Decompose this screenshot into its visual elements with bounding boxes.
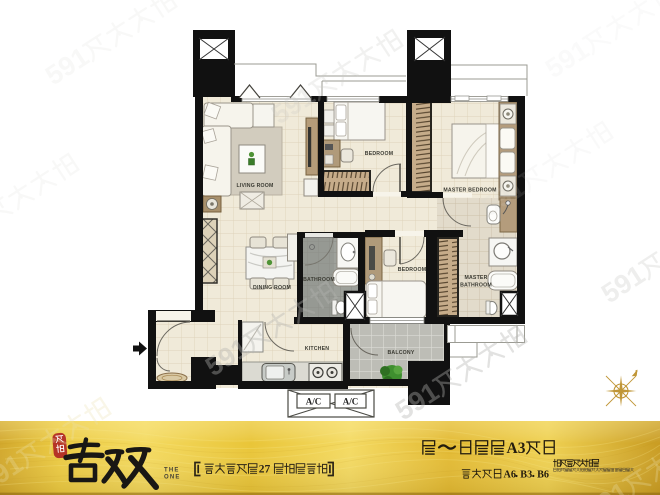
svg-text:MASTER: MASTER [464,275,487,281]
svg-text:LIVING ROOM: LIVING ROOM [236,183,273,189]
svg-text:ONE: ONE [164,475,181,481]
svg-text:A3: A3 [507,440,526,457]
svg-text:BALCONY: BALCONY [387,350,414,356]
svg-text:DINING ROOM: DINING ROOM [253,285,291,291]
svg-text:B6: B6 [537,469,549,480]
svg-text:BATHROOM: BATHROOM [460,283,492,289]
svg-text:A/C: A/C [343,397,359,407]
svg-text:BEDROOM: BEDROOM [398,267,427,273]
svg-text:B3: B3 [520,469,532,480]
svg-text:BEDROOM: BEDROOM [365,151,394,157]
svg-text:A6: A6 [504,469,516,480]
svg-text:27: 27 [259,464,271,476]
svg-text:A/C: A/C [306,397,322,407]
svg-text:KITCHEN: KITCHEN [305,346,330,352]
svg-text:BATHROOM: BATHROOM [303,277,335,283]
svg-text:THE: THE [164,468,180,474]
